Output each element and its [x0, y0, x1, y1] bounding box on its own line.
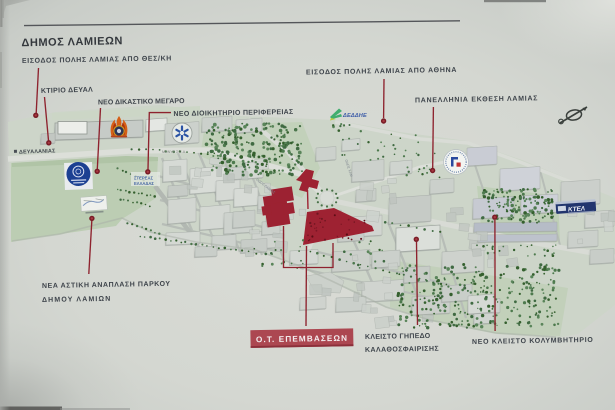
svg-text:Ο.Τ. ΕΠΕΜΒΑΣΕΩΝ: Ο.Τ. ΕΠΕΜΒΑΣΕΩΝ [256, 334, 348, 345]
svg-text:ΚΑΛΑΘΟΣΦΑΙΡΙΣΗΣ: ΚΑΛΑΘΟΣΦΑΙΡΙΣΗΣ [365, 346, 439, 354]
svg-text:ΕΛΛΑΔΑΣ: ΕΛΛΑΔΑΣ [134, 181, 154, 186]
svg-text:ΔΗΜΟΥ ΛΑΜΙΩΝ: ΔΗΜΟΥ ΛΑΜΙΩΝ [42, 296, 112, 304]
svg-text:ΚΛΕΙΣΤΟ ΓΗΠΕΔΟ: ΚΛΕΙΣΤΟ ΓΗΠΕΔΟ [365, 333, 431, 341]
svg-text:ΣΤΕΡΕΑΣ: ΣΤΕΡΕΑΣ [134, 176, 153, 181]
svg-text:ΔΕΔΔΗΕ: ΔΕΔΔΗΕ [342, 113, 367, 119]
svg-text:ΜΟΝΥΕ Σ.Ε.Α.: ΜΟΝΥΕ Σ.Ε.Α. [162, 150, 186, 154]
svg-text:ΔΗΜΟΣ ΛΑΜΙΕΩΝ: ΔΗΜΟΣ ΛΑΜΙΕΩΝ [21, 35, 123, 49]
svg-text:ΚΤΙΡΙΟ ΔΕΥΑΛ: ΚΤΙΡΙΟ ΔΕΥΑΛ [41, 87, 93, 95]
